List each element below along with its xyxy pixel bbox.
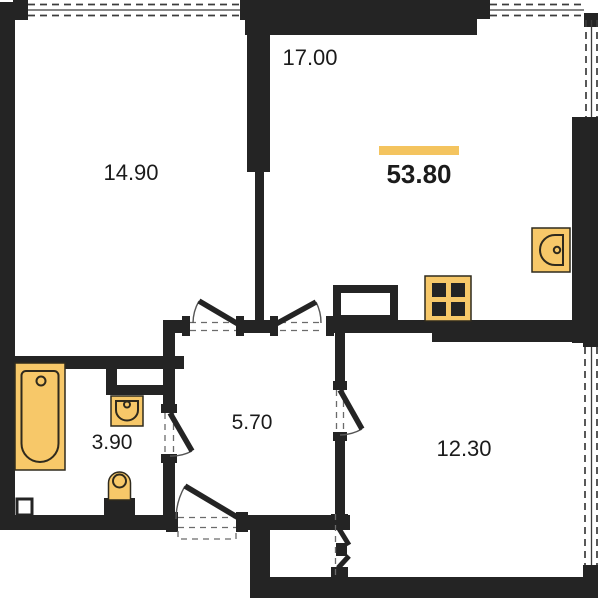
total-area-value: 53.80 <box>386 161 451 187</box>
area-label-bathroom: 3.90 <box>92 431 133 455</box>
floor-plan-drawing <box>0 0 602 600</box>
ventilation-shaft <box>333 285 398 323</box>
window-top-right-corner <box>490 5 597 118</box>
door-hall-to-room-bottom-right <box>337 390 363 435</box>
door-hall-to-kitchen <box>276 302 324 331</box>
area-label-room-top-left: 14.90 <box>103 160 158 186</box>
area-label-room-top-right: 17.00 <box>282 45 337 71</box>
total-area-block: 53.80 <box>378 146 460 187</box>
total-area-accent-bar <box>379 146 459 155</box>
door-hall-to-room-top-left <box>190 301 238 331</box>
kitchen-sink-icon <box>532 228 570 272</box>
stove-icon <box>425 276 471 321</box>
walls <box>0 0 598 598</box>
entrance-door <box>176 486 242 539</box>
window-top-left <box>28 5 240 16</box>
bathtub-icon <box>15 363 65 470</box>
window-bottom-right <box>585 347 597 565</box>
area-label-room-bottom-right: 12.30 <box>436 436 491 462</box>
bathroom-corner-duct <box>17 499 32 515</box>
area-label-hallway: 5.70 <box>232 411 273 435</box>
floor-plan: 14.90 17.00 53.80 3.90 5.70 12.30 <box>0 0 602 600</box>
washbasin-icon <box>111 396 143 426</box>
toilet-icon <box>104 472 135 516</box>
door-bathroom <box>165 413 192 456</box>
